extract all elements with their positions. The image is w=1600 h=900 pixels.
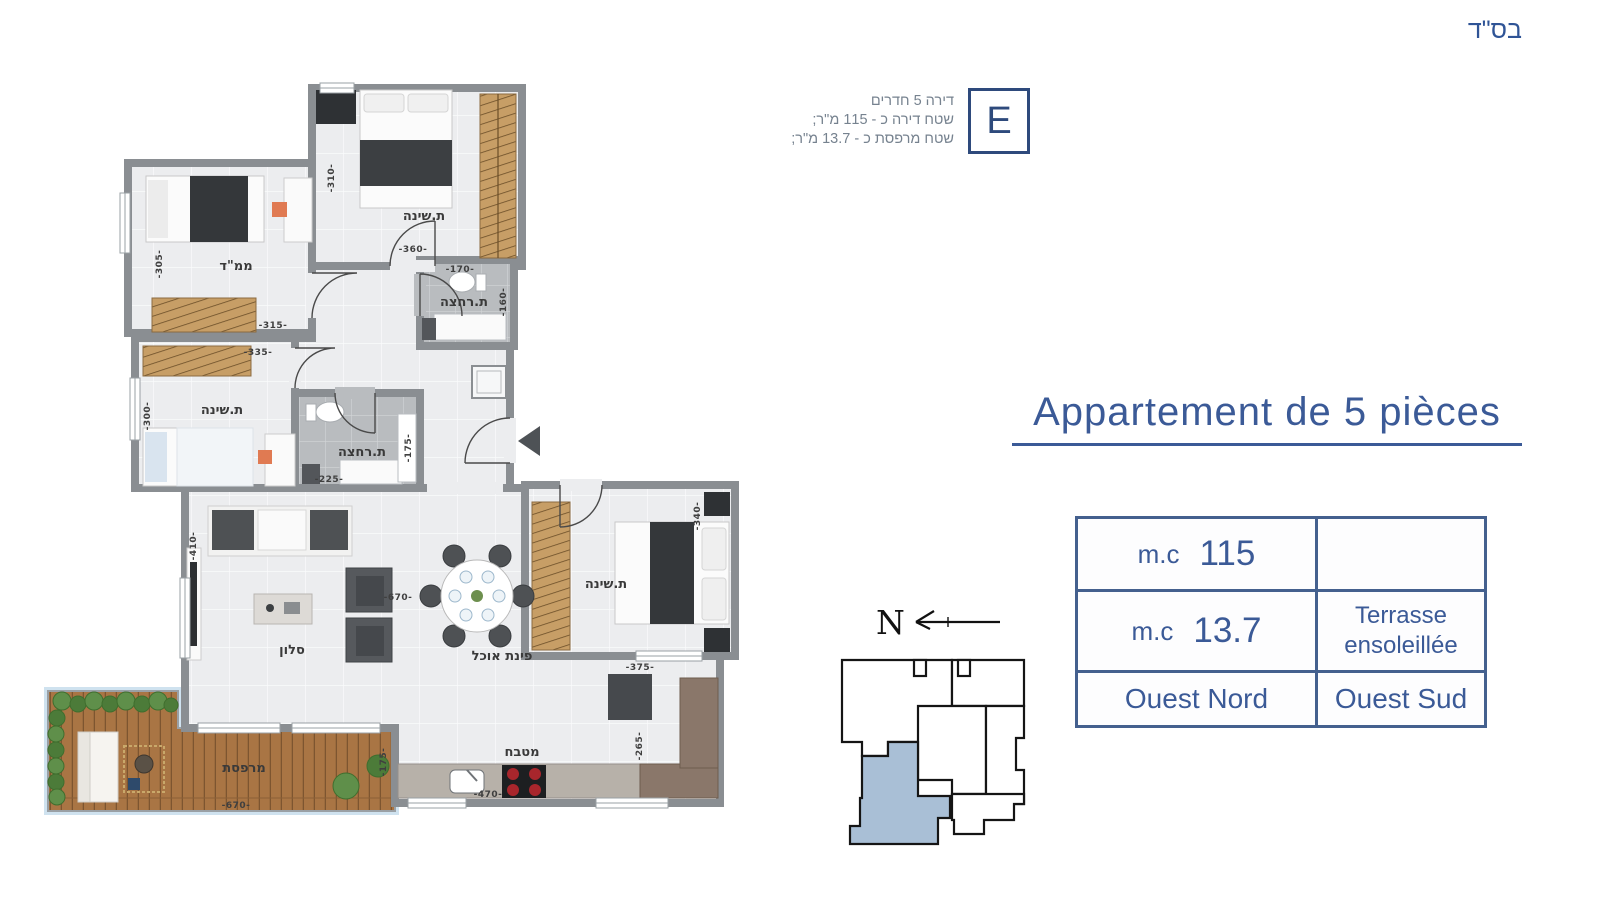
unit-outline <box>918 706 986 794</box>
dim-terrace-h: -175- <box>379 748 389 777</box>
sofa-cushion <box>310 510 348 550</box>
spec-table: m.c 115 m.c 13.7 Terrasse ensoleillée Ou… <box>1075 516 1487 728</box>
dim-kitchen-w: -470- <box>474 790 503 800</box>
room-label-bedroom-right: ת.שינה <box>585 577 627 592</box>
sofa-cushion <box>258 510 306 550</box>
bsd-text: בס"ד <box>1468 16 1522 45</box>
toilet-tank <box>476 274 486 291</box>
unit-info-line1: דירה 5 חדרים <box>791 92 954 111</box>
dim-bedroom-top-h: -310- <box>327 164 337 193</box>
area-value: 115 <box>1200 534 1256 574</box>
unit-label: m.c <box>1131 616 1173 647</box>
tv-icon <box>190 562 197 646</box>
dim-bath-mid-h: -175- <box>404 434 414 463</box>
terrace-desc-line2: ensoleillée <box>1344 631 1457 661</box>
dim-living-w: -670- <box>384 593 413 603</box>
blanket-icon <box>360 140 452 186</box>
wardrobe-icon <box>143 346 251 376</box>
nightstand-icon <box>704 628 730 652</box>
dim-bedroom-top-w: -360- <box>399 245 428 255</box>
coffee-table-icon <box>254 594 312 624</box>
building-footprint-map <box>826 646 1031 851</box>
pillow-icon <box>702 528 726 570</box>
dim-bath-mid-w: -225- <box>315 475 344 485</box>
entrance-arrow-icon <box>518 426 540 456</box>
pillow-icon <box>364 94 404 112</box>
nightstand-icon <box>704 492 730 516</box>
unit-outline <box>986 706 1024 804</box>
wardrobe-icon <box>532 502 570 650</box>
washer-icon <box>422 318 436 340</box>
shaft-notch <box>958 660 970 676</box>
dim-bedroom-left-h: -300- <box>143 402 153 431</box>
dim-kitchen-h: -265- <box>635 732 645 761</box>
table-row: Ouest Nord Ouest Sud <box>1078 673 1484 725</box>
door-opening <box>504 418 516 463</box>
dim-terrace-w: -670- <box>222 801 251 811</box>
cell-area-main: m.c 115 <box>1078 519 1318 592</box>
unit-outline <box>952 794 1024 834</box>
blanket-icon <box>650 522 694 624</box>
unit-label: m.c <box>1138 539 1180 570</box>
tv-unit-icon <box>316 90 356 124</box>
fridge-icon <box>608 674 652 720</box>
blanket-icon <box>177 428 253 486</box>
shaft-notch <box>914 660 926 676</box>
terrace-value: 13.7 <box>1193 611 1261 651</box>
unit-letter-badge: E <box>968 88 1030 154</box>
dim-mamad-w: -315- <box>259 321 288 331</box>
pillow-icon <box>702 578 726 620</box>
compass-arrowhead-icon <box>916 611 934 629</box>
unit-info-line2: שטח דירה כ - 115 מ"ר; <box>791 111 954 130</box>
outdoor-sofa-back <box>78 732 90 802</box>
kitchen-counter-side <box>680 678 718 768</box>
dim-bedroom-right-h: -340- <box>693 502 703 531</box>
room-label-bath-top: ת.רחצה <box>440 295 488 310</box>
vanity-icon <box>340 460 402 484</box>
dim-living-h: -410- <box>189 532 199 561</box>
pillow-icon <box>145 432 167 482</box>
chair-icon <box>258 450 272 464</box>
desk-icon <box>284 178 312 242</box>
room-label-salon: סלון <box>279 643 305 658</box>
cell-area-terrace: m.c 13.7 <box>1078 592 1318 673</box>
dim-bedroom-left-w: -335- <box>244 348 273 358</box>
chair-icon <box>272 202 287 217</box>
north-label: N <box>876 603 905 642</box>
room-label-kitchen: מטבח <box>504 745 539 760</box>
dim-bath-top-h: -160- <box>499 288 509 317</box>
outdoor-cushion-icon <box>128 778 140 790</box>
unit-info-line3: שטח מרפסת כ - 13.7 מ"ר; <box>791 130 954 149</box>
floorplan-page: בס"ד דירה 5 חדרים שטח דירה כ - 115 מ"ר; … <box>0 0 1600 900</box>
kitchen-counter-corner <box>640 764 718 798</box>
room-label-dining: פינת אוכל <box>472 649 533 664</box>
room-label-terrace: מרפסת <box>222 761 266 776</box>
terrace-desc-line1: Terrasse <box>1344 601 1457 631</box>
table-row: m.c 115 <box>1078 519 1484 592</box>
toilet-tank <box>306 404 316 421</box>
room-label-mamad: ממ"ד <box>219 259 252 274</box>
north-arrow: N <box>868 596 1008 644</box>
sofa-cushion <box>212 510 254 550</box>
dim-bedroom-right-w: -375- <box>626 663 655 673</box>
table-row: m.c 13.7 Terrasse ensoleillée <box>1078 592 1484 673</box>
page-title: Appartement de 5 pièces <box>1012 390 1522 446</box>
cell-empty <box>1318 519 1484 592</box>
room-label-bath-mid: ת.רחצה <box>338 445 386 460</box>
cell-orientation-right: Ouest Sud <box>1318 673 1484 725</box>
unit-info-lines: דירה 5 חדרים שטח דירה כ - 115 מ"ר; שטח מ… <box>791 88 954 149</box>
wardrobe-icon <box>152 298 256 332</box>
dim-bath-top-w: -170- <box>446 265 475 275</box>
floor-plan: ת.שינה ממ"ד ת.רחצה ת.שינה ת.רחצה סלון פי… <box>40 78 740 848</box>
blanket-icon <box>190 176 248 242</box>
outdoor-table-icon <box>135 755 153 773</box>
vanity-icon <box>434 314 506 340</box>
pillow-icon <box>408 94 448 112</box>
door-opening <box>390 260 435 272</box>
door-opening <box>427 482 503 494</box>
door-opening <box>335 387 375 399</box>
unit-info-block: דירה 5 חדרים שטח דירה כ - 115 מ"ר; שטח מ… <box>700 88 1030 154</box>
room-label-bedroom-left: ת.שינה <box>201 403 243 418</box>
dim-mamad-h: -305- <box>155 250 165 279</box>
cell-terrace-desc: Terrasse ensoleillée <box>1318 592 1484 673</box>
door-opening <box>560 479 602 491</box>
centerpiece-icon <box>471 590 483 602</box>
cell-orientation-left: Ouest Nord <box>1078 673 1318 725</box>
pillow-icon <box>148 180 168 238</box>
room-label-bedroom-top: ת.שינה <box>403 209 445 224</box>
